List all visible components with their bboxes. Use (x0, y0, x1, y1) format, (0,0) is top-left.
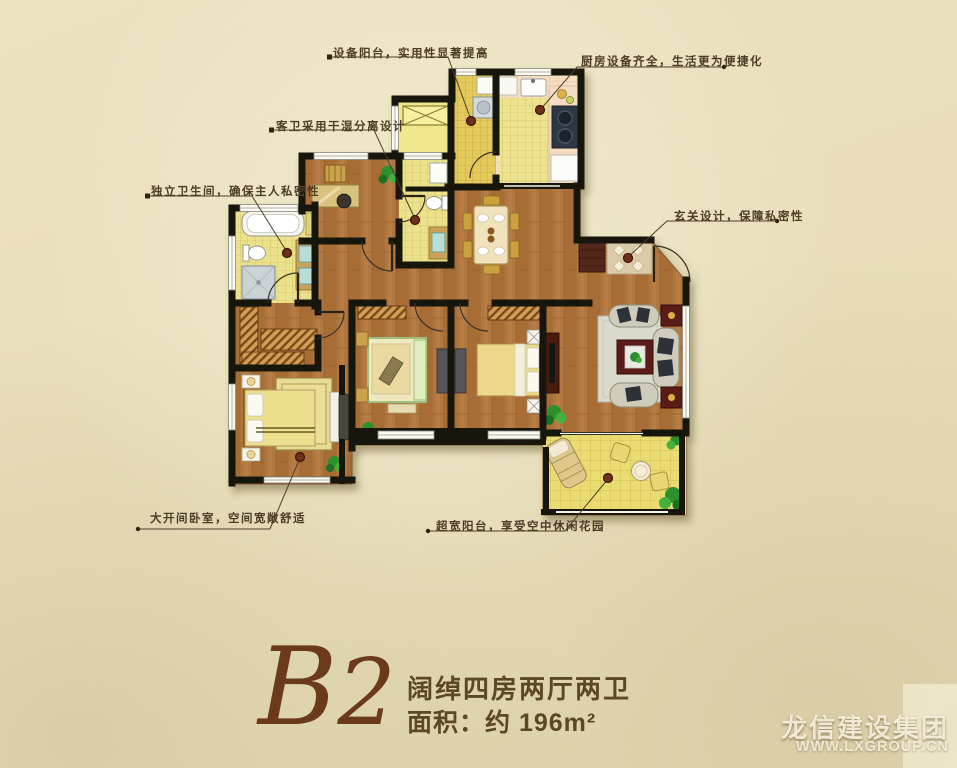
stove (552, 106, 579, 148)
bed (368, 338, 426, 402)
dining-table (474, 206, 508, 264)
callout-guest-bath: 客卫采用干湿分离设计 (276, 118, 406, 134)
washing-machine (473, 97, 494, 118)
dresser (455, 349, 466, 393)
toilet (243, 245, 266, 261)
callout-kitchen: 厨房设备齐全，生活更为便捷化 (581, 53, 763, 69)
stool (527, 399, 541, 413)
watermark-website: WWW.LXGROUP.CN (796, 739, 949, 755)
floorplan-poster: 设备阳台，实用性显著提高 厨房设备齐全，生活更为便捷化 客卫采用干湿分离设计 独… (0, 0, 957, 768)
area-text: 面积：约 196m² (407, 703, 596, 739)
unit-code-digit: 2 (337, 639, 396, 746)
bedroom-door-panels (330, 392, 349, 442)
patio-chair (650, 471, 670, 491)
callout-master-bedroom: 大开间卧室，空间宽敞舒适 (150, 510, 306, 526)
bed (477, 344, 543, 396)
plan-body (229, 69, 691, 516)
water-heater (477, 77, 493, 94)
equipment-balcony (403, 106, 448, 125)
dresser (437, 349, 448, 393)
unit-code-letter: B (258, 625, 337, 750)
callout-balcony: 超宽阳台，享受空中休闲花园 (436, 518, 605, 534)
wardrobe-rack (358, 306, 406, 319)
kitchen-tile-inset (500, 98, 556, 184)
callout-foyer: 玄关设计，保障私密性 (674, 208, 804, 224)
nightstand (356, 388, 368, 402)
wardrobe-rack (488, 306, 540, 320)
shoe-cabinet (579, 242, 605, 272)
floor-plan-drawing (0, 0, 957, 768)
unit-code: B2 (258, 634, 396, 742)
callout-master-bath: 独立卫生间，确保主人私密性 (151, 183, 320, 199)
small-appliance (499, 77, 517, 95)
round-table (632, 462, 651, 481)
desk-chair (337, 194, 351, 208)
tv-console (546, 333, 559, 393)
vanity (429, 227, 448, 259)
layout-description: 阔绰四房两厅两卫 (407, 669, 631, 706)
coffee-table (617, 340, 653, 374)
bed (243, 389, 315, 447)
stool (527, 330, 541, 344)
fridge (551, 155, 579, 181)
nightstand (356, 332, 368, 346)
bench (388, 404, 416, 413)
shower (242, 266, 275, 299)
washer (430, 163, 447, 183)
callout-equipment-balcony: 设备阳台，实用性显著提高 (333, 45, 489, 61)
toilet (426, 196, 448, 210)
